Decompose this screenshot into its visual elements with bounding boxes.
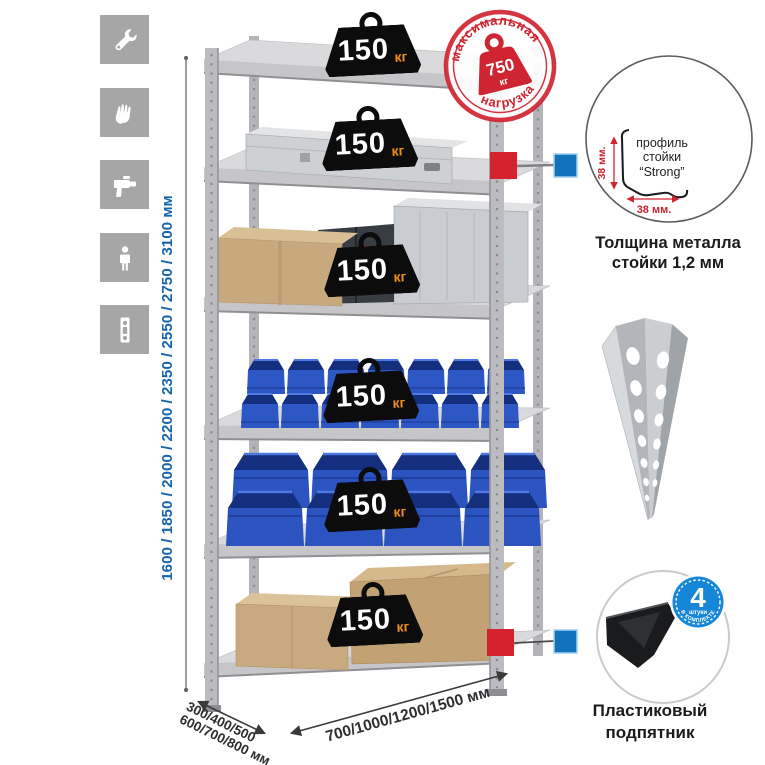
callout-marker-red bbox=[487, 629, 514, 656]
profile-caption-2: стойки 1,2 мм bbox=[612, 254, 724, 272]
weight-body: 150 кг bbox=[322, 479, 420, 533]
shelf-load-value: 150 bbox=[336, 488, 389, 524]
shelf-load-unit: кг bbox=[392, 394, 406, 411]
depth-dimension: 300/400/500 600/700/800 мм bbox=[177, 699, 272, 765]
foot-caption-1: Пластиковый bbox=[593, 701, 708, 720]
shelf-load-badge-3: 150 кг bbox=[321, 230, 420, 299]
profile-caption-1: Толщина металла bbox=[595, 234, 741, 252]
profile-label-1: профиль bbox=[636, 136, 688, 150]
shelf-load-badge-2: 150 кг bbox=[319, 104, 418, 173]
weight-body: 150 кг bbox=[323, 24, 421, 78]
corner-post-photo bbox=[602, 318, 688, 520]
shelf-load-badge-4: 150 кг bbox=[320, 356, 419, 425]
shelf-load-value: 150 bbox=[339, 603, 392, 639]
profile-dim-horizontal: 38 мм. bbox=[637, 204, 672, 216]
width-dimension: 700/1000/1200/1500 мм bbox=[292, 674, 506, 745]
kit-quantity-badge: 4 штуки в комплекте bbox=[670, 574, 726, 630]
shelf-load-badge-5: 150 кг bbox=[321, 465, 420, 534]
product-infographic: 1600 / 1850 / 2000 / 2200 / 2350 / 2550 … bbox=[0, 0, 765, 765]
weight-body: 150 кг bbox=[325, 594, 423, 648]
foot-detail: 4 штуки в комплекте Пластиковый подпятни… bbox=[593, 571, 729, 742]
shelf-load-value: 150 bbox=[334, 127, 387, 163]
shelf-load-value: 150 bbox=[337, 33, 390, 69]
shelf-load-unit: кг bbox=[396, 618, 410, 635]
weight-body: 150 кг bbox=[320, 118, 418, 172]
weight-body: 150 кг bbox=[322, 244, 420, 298]
weight-body: 150 кг bbox=[321, 370, 419, 424]
shelf-load-unit: кг bbox=[393, 268, 407, 285]
shelf-load-unit: кг bbox=[394, 48, 408, 65]
profile-label-3: “Strong” bbox=[639, 165, 684, 179]
callout-marker-red bbox=[490, 152, 517, 179]
shelf-load-badge-6: 150 кг bbox=[324, 580, 423, 649]
kit-badge-value: 4 bbox=[690, 582, 706, 613]
shelf-load-badge-1: 150 кг bbox=[322, 10, 421, 79]
profile-detail: 38 мм. 38 мм. профиль стойки “Strong” То… bbox=[586, 56, 752, 272]
profile-dim-vertical: 38 мм. bbox=[596, 146, 608, 179]
shelf-load-unit: кг bbox=[393, 503, 407, 520]
max-load-stamp: 750 кг максимальная нагрузка bbox=[435, 1, 566, 132]
profile-label-2: стойки bbox=[643, 150, 681, 164]
shelf-load-value: 150 bbox=[335, 379, 388, 415]
kit-badge-sub: штуки bbox=[689, 610, 707, 616]
height-dimension-label: 1600 / 1850 / 2000 / 2200 / 2350 / 2550 … bbox=[159, 195, 176, 581]
shelf-load-value: 150 bbox=[336, 253, 389, 289]
shelf-load-unit: кг bbox=[391, 142, 405, 159]
width-dimension-label: 700/1000/1200/1500 мм bbox=[324, 684, 492, 746]
height-dimension: 1600 / 1850 / 2000 / 2200 / 2350 / 2550 … bbox=[159, 56, 188, 692]
callout-marker-blue bbox=[554, 154, 577, 177]
callout-marker-blue bbox=[554, 630, 577, 653]
foot-caption-2: подпятник bbox=[606, 723, 695, 742]
